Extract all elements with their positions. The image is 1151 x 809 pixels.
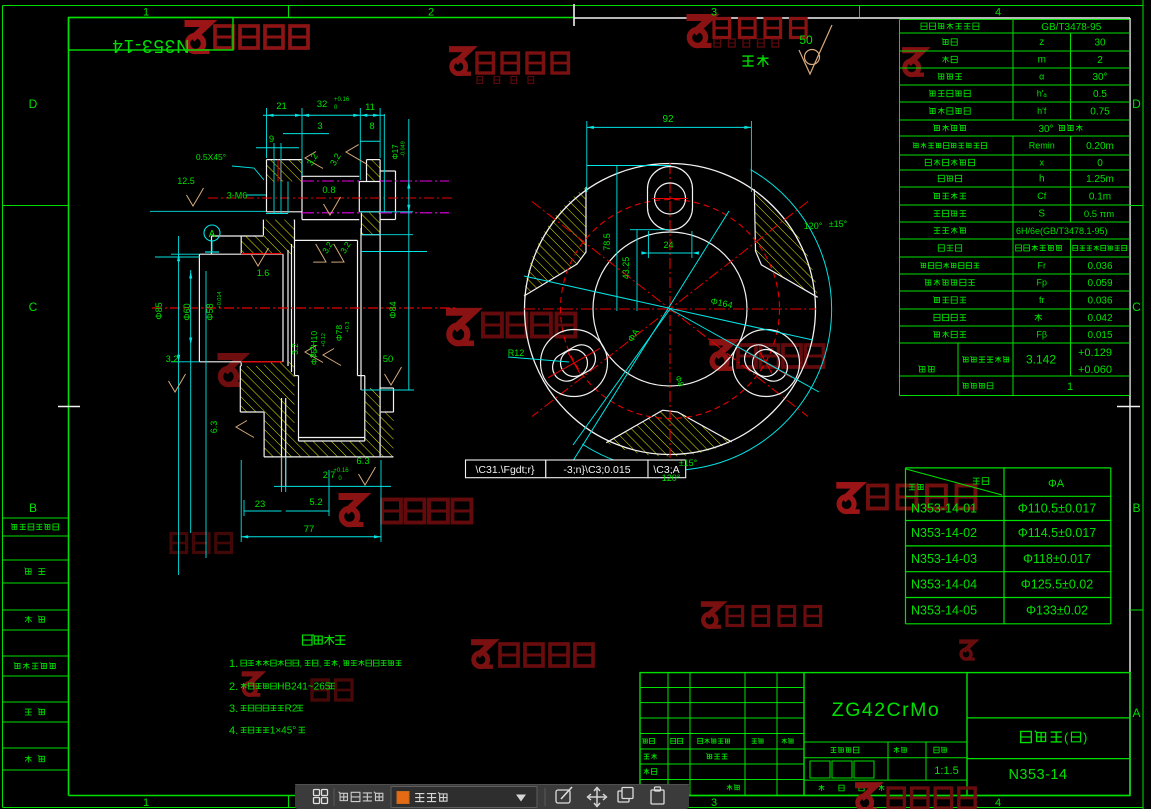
svg-text:,: , bbox=[319, 660, 321, 669]
svg-text:3: 3 bbox=[711, 7, 717, 19]
svg-text:Φ114.5±0.017: Φ114.5±0.017 bbox=[1018, 526, 1097, 540]
svg-text:fr: fr bbox=[1039, 295, 1045, 305]
svg-text:-3;n}\C3;0.015: -3;n}\C3;0.015 bbox=[563, 464, 630, 476]
svg-text:Cf: Cf bbox=[1037, 191, 1046, 201]
svg-text:ZG42CrMo: ZG42CrMo bbox=[832, 699, 940, 721]
svg-text:): ) bbox=[1083, 730, 1087, 745]
svg-text:43.25: 43.25 bbox=[621, 257, 631, 280]
svg-text:C: C bbox=[1132, 300, 1141, 314]
svg-text:1:1.5: 1:1.5 bbox=[934, 765, 958, 777]
svg-text:21: 21 bbox=[276, 101, 287, 112]
svg-text:92: 92 bbox=[662, 114, 674, 125]
svg-text:1.25m: 1.25m bbox=[1086, 174, 1114, 185]
svg-text:2: 2 bbox=[428, 7, 434, 19]
svg-text:Φ78: Φ78 bbox=[334, 325, 344, 342]
svg-text:\C31.\Fgdt;r}: \C31.\Fgdt;r} bbox=[476, 464, 535, 476]
svg-text:30: 30 bbox=[1094, 38, 1106, 49]
svg-text:Φ85: Φ85 bbox=[154, 302, 164, 319]
svg-text:1: 1 bbox=[1067, 381, 1073, 393]
svg-text:30°: 30° bbox=[1038, 124, 1053, 135]
svg-text:+0.129: +0.129 bbox=[1078, 347, 1112, 359]
svg-text:11: 11 bbox=[365, 102, 375, 113]
svg-text:Φ58: Φ58 bbox=[205, 303, 215, 320]
svg-text:+0.014: +0.014 bbox=[217, 292, 223, 309]
svg-text:2.: 2. bbox=[229, 681, 238, 693]
svg-text:N353-14-02: N353-14-02 bbox=[911, 526, 977, 540]
svg-text:77: 77 bbox=[304, 524, 315, 535]
svg-text:9: 9 bbox=[269, 134, 274, 145]
svg-text:4: 4 bbox=[995, 7, 1001, 19]
svg-text:Φ118±0.017: Φ118±0.017 bbox=[1023, 552, 1091, 566]
svg-text:3: 3 bbox=[317, 121, 322, 132]
svg-text:0: 0 bbox=[1097, 158, 1103, 169]
svg-text:1×45°: 1×45° bbox=[270, 726, 297, 737]
svg-text:N353-14: N353-14 bbox=[112, 36, 190, 57]
svg-text:-0.049: -0.049 bbox=[401, 141, 407, 157]
svg-text:,: , bbox=[300, 660, 302, 669]
svg-text:6H/6e(GB/T3478.1-95): 6H/6e(GB/T3478.1-95) bbox=[1016, 226, 1108, 236]
svg-text:Fp: Fp bbox=[1036, 278, 1047, 288]
svg-text:N353-14-01: N353-14-01 bbox=[911, 501, 977, 515]
svg-text:4: 4 bbox=[995, 797, 1001, 809]
svg-text:50: 50 bbox=[383, 354, 394, 365]
svg-text:0.8: 0.8 bbox=[322, 185, 335, 196]
svg-text:A: A bbox=[1132, 706, 1140, 720]
svg-text:8: 8 bbox=[369, 121, 374, 132]
svg-text:x: x bbox=[1040, 158, 1045, 168]
svg-text:3-M6: 3-M6 bbox=[227, 191, 248, 201]
svg-text:Fβ: Fβ bbox=[1036, 330, 1047, 340]
svg-text:0.75: 0.75 bbox=[1090, 107, 1110, 118]
svg-text:Fr: Fr bbox=[1038, 261, 1047, 271]
svg-text:+0.16: +0.16 bbox=[333, 468, 349, 474]
svg-text:1.6: 1.6 bbox=[257, 268, 270, 278]
svg-text:6.3: 6.3 bbox=[356, 456, 369, 467]
svg-text:78.5: 78.5 bbox=[602, 233, 612, 251]
svg-text:+0.16: +0.16 bbox=[334, 97, 350, 103]
svg-text:32: 32 bbox=[317, 99, 328, 110]
svg-text:Φ60: Φ60 bbox=[182, 303, 192, 320]
svg-text:z: z bbox=[1039, 37, 1044, 48]
svg-text:3.2: 3.2 bbox=[308, 346, 318, 358]
svg-text:120°: 120° bbox=[662, 473, 681, 483]
svg-text:0.036: 0.036 bbox=[1087, 261, 1112, 272]
svg-text:0.1m: 0.1m bbox=[1089, 192, 1111, 203]
svg-text:0.20m: 0.20m bbox=[1086, 141, 1114, 152]
svg-text:50: 50 bbox=[799, 33, 813, 47]
svg-text:Φ84: Φ84 bbox=[388, 301, 398, 318]
svg-text:A: A bbox=[209, 229, 216, 240]
svg-text:0.036: 0.036 bbox=[1087, 296, 1112, 307]
svg-text:2: 2 bbox=[1097, 55, 1103, 66]
svg-text:0.015: 0.015 bbox=[1087, 330, 1112, 341]
svg-text:h'f: h'f bbox=[1037, 106, 1047, 116]
svg-text:ΦA: ΦA bbox=[1048, 478, 1065, 490]
svg-text:+0.12: +0.12 bbox=[321, 333, 327, 347]
svg-text:3: 3 bbox=[711, 797, 717, 809]
svg-text:0.5 πm: 0.5 πm bbox=[1084, 209, 1114, 220]
svg-text:1: 1 bbox=[143, 797, 149, 809]
svg-text:±15°: ±15° bbox=[679, 458, 698, 468]
svg-text:±15°: ±15° bbox=[829, 219, 848, 229]
svg-text:24: 24 bbox=[663, 240, 673, 250]
svg-text:C: C bbox=[29, 300, 38, 314]
svg-text:m: m bbox=[1038, 55, 1046, 66]
svg-text:N353-14-03: N353-14-03 bbox=[911, 552, 977, 566]
svg-text:N353-14-04: N353-14-04 bbox=[911, 578, 977, 592]
svg-text:S: S bbox=[1038, 209, 1045, 220]
svg-text:6.3: 6.3 bbox=[209, 421, 219, 434]
svg-text:0.5X45°: 0.5X45° bbox=[196, 152, 226, 162]
svg-text:+0.3: +0.3 bbox=[345, 322, 351, 333]
svg-text:1.: 1. bbox=[229, 658, 238, 670]
svg-text:23: 23 bbox=[255, 499, 266, 510]
svg-text:3.142: 3.142 bbox=[1026, 353, 1056, 367]
svg-text:Φ17: Φ17 bbox=[391, 144, 400, 160]
svg-text:30°: 30° bbox=[1092, 72, 1107, 83]
svg-text:+0.060: +0.060 bbox=[1078, 364, 1112, 376]
svg-text:N353-14: N353-14 bbox=[1008, 767, 1067, 783]
svg-text:D: D bbox=[1132, 97, 1141, 111]
svg-text:D: D bbox=[29, 97, 38, 111]
svg-text:(: ( bbox=[1064, 730, 1069, 745]
svg-text:Remin: Remin bbox=[1029, 141, 1055, 151]
svg-text:α: α bbox=[1039, 72, 1044, 82]
svg-text:B: B bbox=[1132, 501, 1140, 515]
svg-text:4.: 4. bbox=[229, 725, 238, 737]
svg-text:0.042: 0.042 bbox=[1087, 313, 1112, 324]
svg-text:R12: R12 bbox=[508, 348, 525, 358]
svg-text:5.2: 5.2 bbox=[309, 497, 322, 508]
svg-text:GB/T3478-95: GB/T3478-95 bbox=[1041, 22, 1101, 33]
svg-text:12.5: 12.5 bbox=[177, 176, 195, 186]
svg-text:B: B bbox=[29, 501, 37, 515]
svg-text:Φ125.5±0.02: Φ125.5±0.02 bbox=[1021, 578, 1093, 592]
svg-text:1: 1 bbox=[143, 7, 149, 19]
svg-text:Φ133±0.02: Φ133±0.02 bbox=[1026, 604, 1088, 618]
svg-text:3.2: 3.2 bbox=[290, 343, 300, 355]
svg-text:,: , bbox=[338, 660, 340, 669]
svg-text:Φ110.5±0.017: Φ110.5±0.017 bbox=[1018, 501, 1097, 515]
svg-text:3.: 3. bbox=[229, 703, 238, 715]
svg-text:h: h bbox=[1039, 174, 1045, 185]
svg-text:120°: 120° bbox=[804, 221, 823, 231]
svg-text:R2: R2 bbox=[285, 704, 298, 715]
svg-text:0.059: 0.059 bbox=[1087, 278, 1112, 289]
svg-text:h'ₐ: h'ₐ bbox=[1037, 89, 1048, 99]
svg-text:3.2: 3.2 bbox=[166, 354, 179, 364]
svg-text:N353-14-05: N353-14-05 bbox=[911, 604, 977, 618]
svg-text:0.5: 0.5 bbox=[1093, 89, 1107, 100]
svg-text:HB241~265: HB241~265 bbox=[277, 682, 331, 693]
